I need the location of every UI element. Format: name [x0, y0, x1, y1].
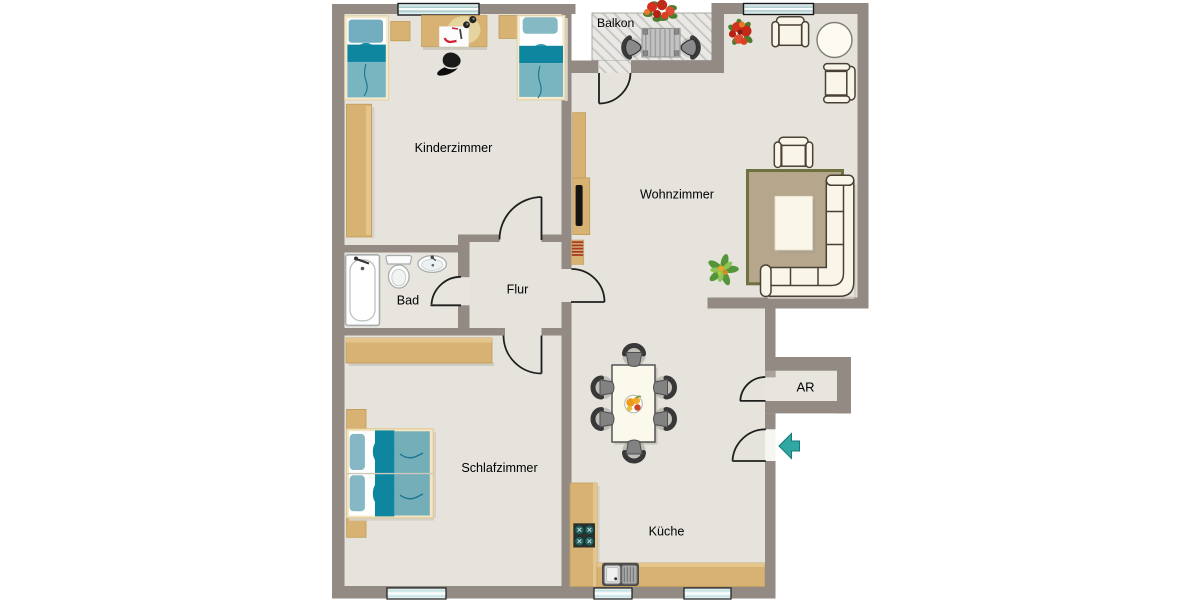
svg-text:Schlafzimmer: Schlafzimmer [461, 461, 537, 475]
svg-text:Wohnzimmer: Wohnzimmer [640, 188, 714, 202]
svg-text:AR: AR [796, 380, 814, 395]
svg-text:Küche: Küche [649, 525, 685, 539]
svg-text:Balkon: Balkon [597, 16, 634, 30]
svg-text:Bad: Bad [397, 294, 419, 308]
svg-text:Flur: Flur [507, 283, 529, 297]
svg-text:Kinderzimmer: Kinderzimmer [415, 141, 493, 155]
